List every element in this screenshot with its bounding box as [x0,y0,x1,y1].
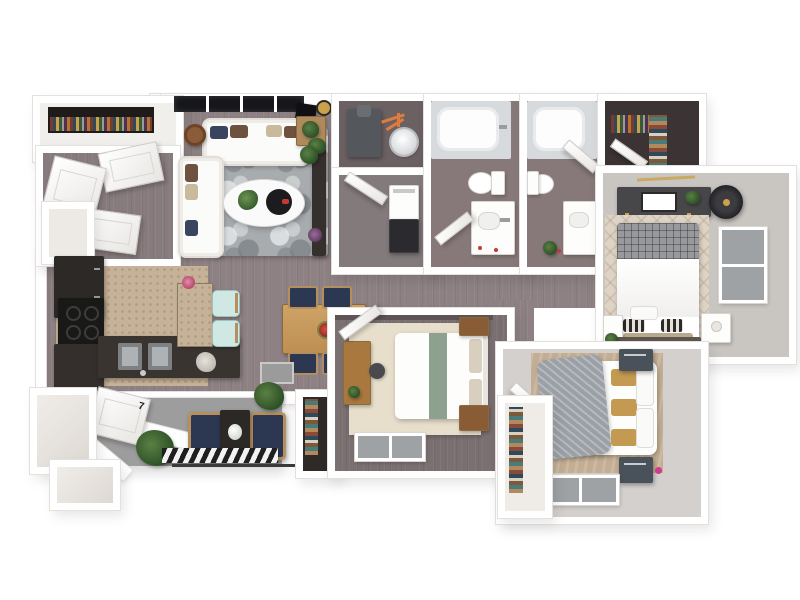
round-side-table [184,124,206,146]
bedroom-3-nightstand-bottom [619,457,653,483]
furnace-flue [357,105,371,117]
folded-clothes-stack [649,115,667,171]
coffee-table-tray [266,189,292,215]
dresser-plant [685,191,700,204]
bedroom-3-closet [498,396,552,518]
master-nightstand-right [701,313,731,343]
sofa-left [178,156,224,258]
sage-runner [429,333,447,419]
bathtub-surround [527,101,597,159]
sink-faucet [140,370,146,376]
vanity [471,201,515,255]
hall-gray-mat [262,364,292,382]
bedroom-2-window [355,433,425,461]
bedroom-2-nightstand-bottom [459,405,489,431]
bed-pillow-patterned [623,319,645,332]
sink-faucet [500,218,510,222]
white-pillow [637,409,653,447]
bookshelf-books [50,117,152,131]
dining-chair [288,352,318,375]
bathtub [533,107,585,151]
bookshelf-books [305,399,318,455]
living-windows [174,96,304,112]
sofa-pillow [266,125,282,137]
desk-chair [369,363,385,379]
bedroom-3-window [541,475,619,505]
patio-plant-small [254,382,284,410]
cabinet-handle [94,268,100,270]
orange-pipe [397,113,400,127]
stool-wood-arm [235,293,238,313]
bed-pillow [469,339,482,373]
sofa-pillow [185,220,198,236]
bar-stool [212,290,240,317]
bathroom-1-door [434,211,474,246]
toilet-bowl [469,173,493,193]
floor-lamp [318,102,330,114]
stool-wood-arm [235,323,238,343]
window-mullion [240,96,243,112]
master-window [719,227,767,303]
sink-right [148,343,172,370]
kitchen-left-wall [36,246,46,402]
laundry-closet [332,168,438,274]
burner [84,325,99,340]
vanity-decor-red [478,246,482,250]
duvet [617,259,699,317]
mustard-pillow [611,399,637,416]
water-heater [391,129,417,155]
bedroom-3-nightstand-top [619,349,653,371]
burner [66,325,81,340]
bathroom-1 [424,94,534,274]
patio-flowers-white [228,424,242,440]
closet-clothes-stack [509,407,523,493]
bedroom-2-desk [343,341,371,405]
patio-storage-horizontal [50,460,120,510]
nightstand-lamp [712,322,721,331]
master-bedroom [596,166,796,364]
window-pane [358,436,389,458]
side-table-plant [302,121,319,138]
laundry-door [344,171,389,205]
light-bulb [723,199,730,206]
bathtub-surround [431,101,511,159]
door-panel [98,398,142,434]
window-pane [392,436,423,458]
coffee-table [224,180,304,226]
console-flowers [308,228,322,242]
kitchen-lower-cabinets [54,344,104,388]
bar-stool [212,320,240,347]
sink-left [118,343,142,370]
washer [389,185,419,221]
toilet-tank [527,171,539,195]
desk-plant [348,386,360,398]
bath-plant [543,241,557,255]
ceiling-light [709,185,743,219]
dining-chair [322,286,352,309]
master-bed [617,223,699,341]
door-number-label: 7 [137,401,145,413]
furnace [347,109,381,157]
floor-plan-render: 7 [0,0,800,600]
window-pane [722,267,764,301]
white-plant [196,352,216,372]
sofa-pillow [210,126,228,139]
console-plant-mid [300,146,318,164]
bedroom-3-bed [545,361,657,455]
gold-decor [637,175,695,181]
white-pillow [637,367,653,405]
window-mullion [274,96,277,112]
sink-basin [569,212,589,228]
foyer-door-top [97,141,164,193]
burner [84,306,99,321]
tub-faucet [499,125,507,129]
sink-basin [478,212,500,230]
dryer [389,219,419,253]
plaid-blanket [617,223,699,259]
bedroom-2-nightstand-top [459,317,489,336]
vanity-decor-red [494,248,498,252]
sofa-pillow [230,125,248,138]
bar-flowers [182,276,195,289]
sofa-pillow [185,164,198,182]
bed-pillow-white [631,307,657,319]
dresser-art-frame [641,192,677,212]
window-pane [582,478,617,502]
sofa-pillow [185,184,198,200]
balcony-rail-shadow [172,464,296,467]
bedroom-2 [328,308,514,478]
mustard-pillow [611,369,637,386]
nightstand-deco [624,463,646,465]
mustard-pillow [611,429,637,446]
foyer-alcove [42,202,94,264]
nightstand-deco [624,354,646,356]
bed-pillow-patterned [661,319,683,332]
dining-chair [288,286,318,309]
window-pane [722,230,764,264]
closet-door [610,138,649,169]
tray-item [282,199,289,204]
door-panel [109,151,155,182]
window-mullion [206,96,209,112]
burner [66,306,81,321]
pink-decor [655,467,662,474]
washer-controls [393,189,415,193]
bath-flowers-red [557,249,561,253]
coffee-table-plant [238,190,258,210]
toilet-tank [491,171,505,195]
bathtub [437,107,499,151]
bar-counter [178,284,212,346]
striped-door-mat [162,448,278,463]
